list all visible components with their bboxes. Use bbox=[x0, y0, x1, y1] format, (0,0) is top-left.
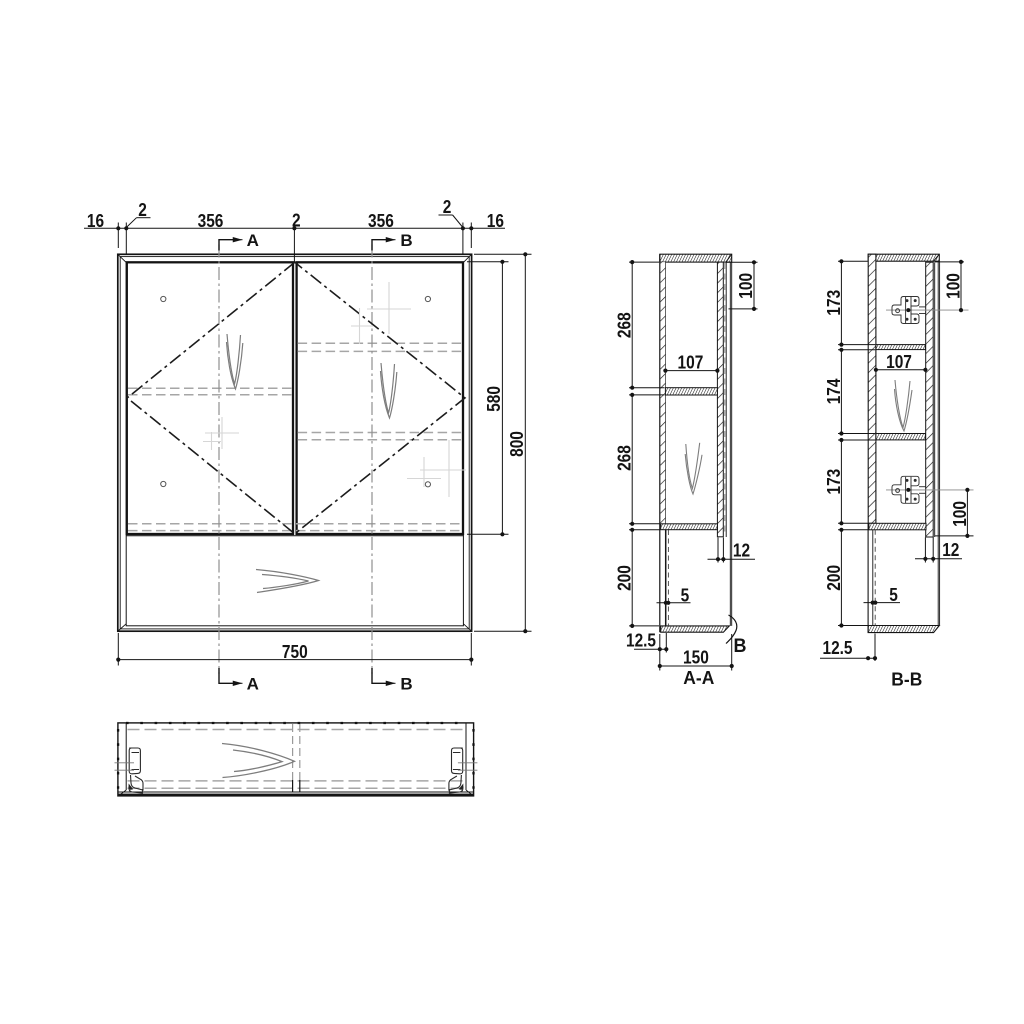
svg-text:16: 16 bbox=[87, 210, 104, 231]
svg-text:107: 107 bbox=[678, 352, 704, 373]
svg-text:12.5: 12.5 bbox=[626, 629, 656, 650]
svg-text:750: 750 bbox=[282, 641, 308, 662]
svg-text:12: 12 bbox=[942, 539, 959, 560]
svg-text:B: B bbox=[400, 675, 412, 694]
svg-text:174: 174 bbox=[823, 378, 844, 404]
svg-text:2: 2 bbox=[138, 199, 147, 220]
svg-text:5: 5 bbox=[889, 584, 898, 605]
svg-text:B-B: B-B bbox=[891, 670, 922, 690]
svg-text:100: 100 bbox=[949, 501, 970, 527]
svg-text:16: 16 bbox=[487, 210, 504, 231]
svg-text:100: 100 bbox=[942, 273, 963, 299]
svg-text:173: 173 bbox=[823, 469, 844, 495]
svg-text:356: 356 bbox=[198, 210, 224, 231]
svg-text:200: 200 bbox=[614, 565, 635, 591]
svg-text:A: A bbox=[247, 231, 259, 250]
svg-text:5: 5 bbox=[681, 584, 690, 605]
svg-text:B: B bbox=[400, 231, 412, 250]
svg-text:200: 200 bbox=[823, 565, 844, 591]
svg-text:A-A: A-A bbox=[683, 668, 714, 688]
svg-text:B: B bbox=[734, 636, 747, 657]
svg-text:580: 580 bbox=[483, 386, 504, 412]
svg-text:268: 268 bbox=[614, 312, 635, 338]
svg-text:150: 150 bbox=[683, 647, 709, 668]
svg-text:100: 100 bbox=[735, 273, 756, 299]
svg-text:107: 107 bbox=[886, 351, 912, 372]
svg-text:173: 173 bbox=[823, 290, 844, 316]
svg-text:A: A bbox=[247, 675, 259, 694]
svg-text:800: 800 bbox=[506, 431, 527, 457]
svg-text:2: 2 bbox=[443, 196, 452, 217]
svg-text:12.5: 12.5 bbox=[823, 637, 853, 658]
svg-text:12: 12 bbox=[733, 539, 750, 560]
svg-text:268: 268 bbox=[614, 445, 635, 471]
svg-text:356: 356 bbox=[368, 210, 394, 231]
